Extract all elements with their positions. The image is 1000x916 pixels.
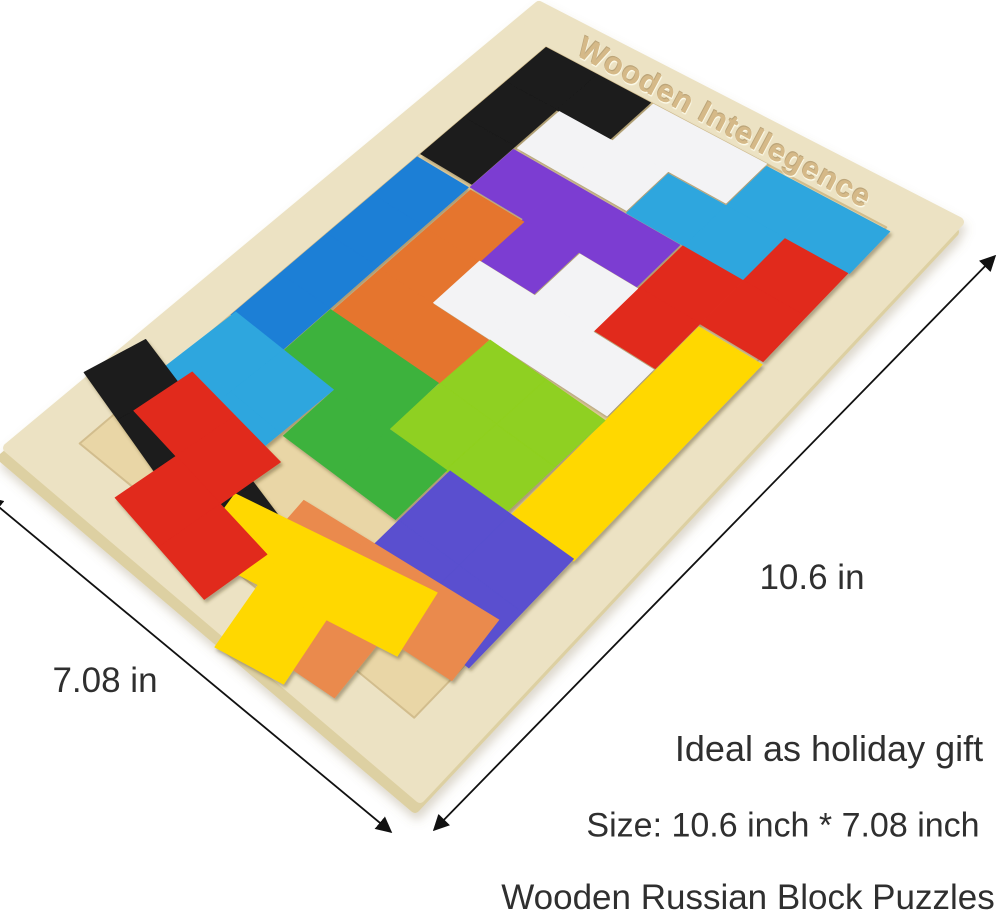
dimension-label-length: 10.6 in bbox=[759, 558, 864, 598]
dimension-label-width: 7.08 in bbox=[52, 661, 157, 701]
caption-size: Size: 10.6 inch * 7.08 inch bbox=[586, 807, 979, 846]
product-image: Wooden Intellegence 10.6 in 7.08 in Idea… bbox=[0, 0, 1000, 916]
caption-holiday-gift: Ideal as holiday gift bbox=[675, 728, 983, 770]
caption-product-title: Wooden Russian Block Puzzles bbox=[501, 878, 995, 916]
board-scene bbox=[0, 0, 1000, 916]
